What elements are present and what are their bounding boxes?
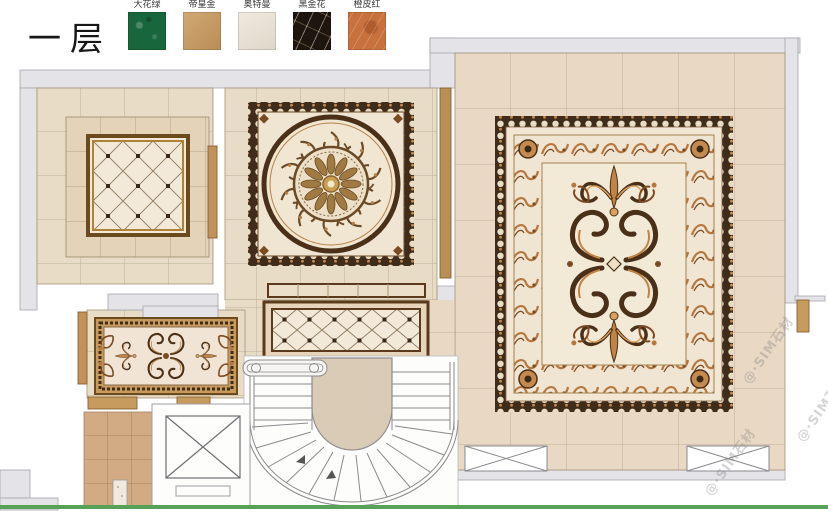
step-strip (268, 284, 425, 297)
elevator-shaft (152, 404, 250, 506)
floor-plan-page: 一层 大花绿 帝皇金 奥特曼 黑金花 橙皮红 (0, 0, 828, 514)
stair-handrail-cap (243, 360, 327, 376)
carpet-main (495, 116, 733, 412)
lattice-panel (264, 302, 428, 358)
marble-strip (113, 480, 127, 506)
carpet-small (95, 318, 237, 394)
room-b-rotunda-panel (248, 102, 414, 266)
window-hatch-left (465, 446, 547, 471)
floor-plan-svg (0, 0, 828, 514)
footer-line (0, 505, 828, 509)
window-hatch-right (687, 446, 769, 471)
rotunda-medallion (264, 117, 398, 251)
stair-spiral (243, 356, 458, 506)
hall-floor (427, 300, 455, 358)
room-a-panel (66, 117, 209, 257)
